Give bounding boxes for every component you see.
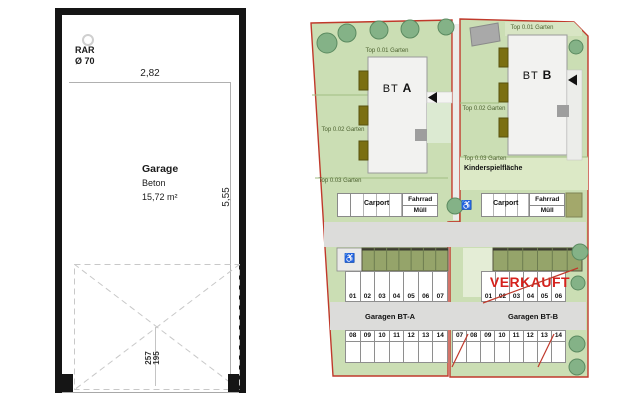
width-dimension-value: 2,82 xyxy=(120,68,180,79)
bike-label-b: Fahrrad xyxy=(530,194,564,206)
garage-stall: 12 xyxy=(404,331,419,362)
garage-bta-stalls-top: 01020304050607 xyxy=(345,271,448,302)
garage-bta-title: Garagen BT-A xyxy=(340,312,440,321)
garage-stall: 13 xyxy=(419,331,434,362)
garage-stall: 09 xyxy=(361,331,376,362)
garden-label-b-top: Top 0.01 Garten xyxy=(496,25,568,31)
garden-label-a-mid: Top 0.02 Garten xyxy=(308,127,378,133)
wall-stub-right xyxy=(228,374,239,393)
building-a-label: BT A xyxy=(368,81,427,95)
garage-stall: 08 xyxy=(467,331,481,362)
balcony-a3 xyxy=(359,141,368,160)
garage-stall: 11 xyxy=(510,331,524,362)
waste-label-b: Müll xyxy=(530,206,564,217)
garage-stall: 07 xyxy=(453,331,467,362)
garage-stall: 06 xyxy=(419,272,434,301)
garage-stall: 12 xyxy=(524,331,538,362)
garage-btb-stalls-bottom: 0708091011121314 xyxy=(452,330,566,363)
garage-bta-stalls-bottom: 08091011121314 xyxy=(345,330,448,363)
building-b-letter: B xyxy=(543,68,553,82)
terrace-a xyxy=(415,129,427,141)
site-plan: Top 0.01 Garten BT A Top 0.02 Garten Top… xyxy=(300,10,600,390)
driveway-upper xyxy=(324,222,586,247)
drain-size: Ø 70 xyxy=(75,56,95,67)
drain-label: RAR xyxy=(75,45,95,56)
storage-box-b xyxy=(566,193,582,217)
building-b-label: BT B xyxy=(508,68,567,82)
footpath xyxy=(453,24,459,220)
door-swing-area xyxy=(74,264,240,390)
wheelchair-icon-a: ♿ xyxy=(344,253,355,264)
garage-btb-title: Garagen BT-B xyxy=(483,312,583,321)
balcony-b3 xyxy=(499,118,508,137)
garage-stall: 14 xyxy=(433,331,447,362)
garage-stall: 08 xyxy=(346,331,361,362)
room-area: 15,72 m² xyxy=(142,191,178,203)
garage-stall: 09 xyxy=(481,331,495,362)
sold-banner: VERKAUFT xyxy=(476,274,584,290)
balcony-a2 xyxy=(359,106,368,125)
balcony-a1 xyxy=(359,71,368,90)
room-annotation: Garage Beton 15,72 m² xyxy=(142,163,178,203)
depth-dimension-value: 5,55 xyxy=(221,182,233,212)
garage-stall: 11 xyxy=(390,331,405,362)
building-b xyxy=(508,35,567,155)
garage-floor-plan: RAR Ø 70 2,82 5,55 Garage Beton 15,72 m²… xyxy=(55,8,246,393)
carport-label-a: Carport xyxy=(351,200,402,207)
door-dimension-2: 195 xyxy=(152,346,162,370)
garage-stall: 05 xyxy=(404,272,419,301)
wall-stub-left xyxy=(62,374,73,393)
garage-roof-a xyxy=(362,248,448,271)
terrace-b xyxy=(557,105,569,117)
carport-stalls-b: Carport xyxy=(482,194,530,216)
drain-annotation: RAR Ø 70 xyxy=(75,45,95,67)
carport-stall-a0 xyxy=(338,194,351,216)
garden-label-b-bottom: Top 0.03 Garten xyxy=(450,156,520,162)
building-b-prefix: BT xyxy=(523,70,539,82)
room-material: Beton xyxy=(142,177,178,189)
balcony-b2 xyxy=(499,83,508,102)
bike-waste-box-a: Fahrrad Müll xyxy=(403,194,437,216)
garden-label-a-bottom: Top 0.03 Garten xyxy=(305,178,375,184)
carport-row-b: Carport Fahrrad Müll xyxy=(481,193,565,217)
garden-label-a-top: Top 0.01 Garten xyxy=(352,48,422,54)
width-dimension-line xyxy=(69,82,230,83)
room-name: Garage xyxy=(142,163,178,175)
bike-waste-box-b: Fahrrad Müll xyxy=(530,194,564,216)
building-a xyxy=(368,57,427,173)
garage-stall: 04 xyxy=(390,272,405,301)
carport-stalls-a: Carport xyxy=(351,194,403,216)
garden-label-b-mid: Top 0.02 Garten xyxy=(449,106,519,112)
playground-label: Kinderspielfläche xyxy=(464,165,564,172)
balcony-b1 xyxy=(499,48,508,67)
building-a-letter: A xyxy=(403,81,413,95)
garage-stall: 14 xyxy=(552,331,565,362)
garage-stall: 01 xyxy=(346,272,361,301)
garage-stall: 13 xyxy=(538,331,552,362)
carport-label-b: Carport xyxy=(482,200,529,207)
carport-row-a: Carport Fahrrad Müll xyxy=(337,193,438,217)
wheelchair-icon-b: ♿ xyxy=(461,200,472,211)
garage-stall: 02 xyxy=(361,272,376,301)
bike-label-a: Fahrrad xyxy=(403,194,437,206)
floor-plan-page: RAR Ø 70 2,82 5,55 Garage Beton 15,72 m²… xyxy=(0,0,620,410)
garden-patch-a xyxy=(427,103,451,143)
building-a-prefix: BT xyxy=(383,83,399,95)
door-opening-line xyxy=(62,392,239,393)
garage-stall: 07 xyxy=(433,272,447,301)
garage-stall: 10 xyxy=(495,331,509,362)
garage-stall: 10 xyxy=(375,331,390,362)
waste-label-a: Müll xyxy=(403,206,437,217)
garage-stall: 03 xyxy=(375,272,390,301)
